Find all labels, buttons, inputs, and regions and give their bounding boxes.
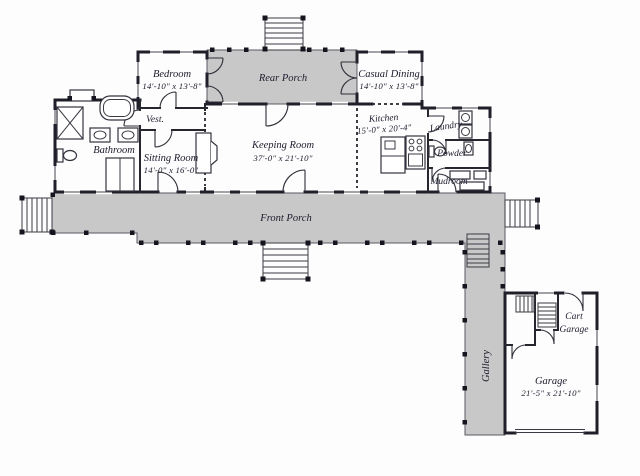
label-cart-garage-1: Cart <box>565 312 583 322</box>
front-porch-gallery-deck <box>52 193 505 435</box>
range-fixture <box>406 136 425 169</box>
dims-kitchen: 15'-0" x 20'-4" <box>357 122 412 136</box>
floor-plan-page: Bedroom 14'-10" x 13'-8" Rear Porch Casu… <box>0 0 640 476</box>
bathtub-fixture <box>100 96 134 120</box>
rear-porch-steps <box>263 16 306 52</box>
keeping-room-fireplace <box>196 133 217 173</box>
entry-stoop <box>68 90 97 101</box>
dims-keeping-room: 37'-0" x 21'-10" <box>252 153 312 163</box>
label-keeping-room: Keeping Room <box>251 140 315 151</box>
label-garage: Garage <box>535 376 567 387</box>
label-powder: Powder <box>436 149 467 159</box>
front-porch-steps <box>261 241 311 282</box>
dims-garage: 21'-5" x 21'-10" <box>521 388 580 398</box>
vanity-sinks <box>90 128 138 142</box>
label-cart-garage-2: Garage <box>559 325 588 335</box>
label-sitting-room: Sitting Room <box>144 153 199 164</box>
label-front-porch: Front Porch <box>259 213 311 224</box>
east-porch-steps <box>505 198 540 230</box>
label-casual-dining: Casual Dining <box>358 69 420 80</box>
garage-walls <box>505 293 597 433</box>
kitchen-island <box>381 137 405 173</box>
label-laundry: Laundry <box>428 120 463 135</box>
label-mudroom: Mudroom <box>429 177 467 187</box>
label-gallery: Gallery <box>481 350 492 382</box>
dims-bedroom: 14'-10" x 13'-8" <box>142 81 201 91</box>
label-vestibule: Vest. <box>146 115 164 125</box>
floor-plan-drawing: Bedroom 14'-10" x 13'-8" Rear Porch Casu… <box>0 0 640 476</box>
label-rear-porch: Rear Porch <box>258 73 307 84</box>
bathroom-closet <box>106 158 134 191</box>
garage-door-opening <box>515 430 585 433</box>
label-bedroom: Bedroom <box>153 69 192 80</box>
dims-sitting-room: 14'-0" x 16'-0" <box>144 165 199 175</box>
west-porch-steps <box>20 196 55 235</box>
bathroom-fixtures <box>57 96 138 191</box>
label-bathroom: Bathroom <box>93 145 135 156</box>
shower-fixture <box>57 107 83 139</box>
toilet-fixture <box>57 149 77 162</box>
kitchen-fixtures <box>381 136 425 173</box>
dims-casual-dining: 14'-10" x 13'-8" <box>359 81 418 91</box>
